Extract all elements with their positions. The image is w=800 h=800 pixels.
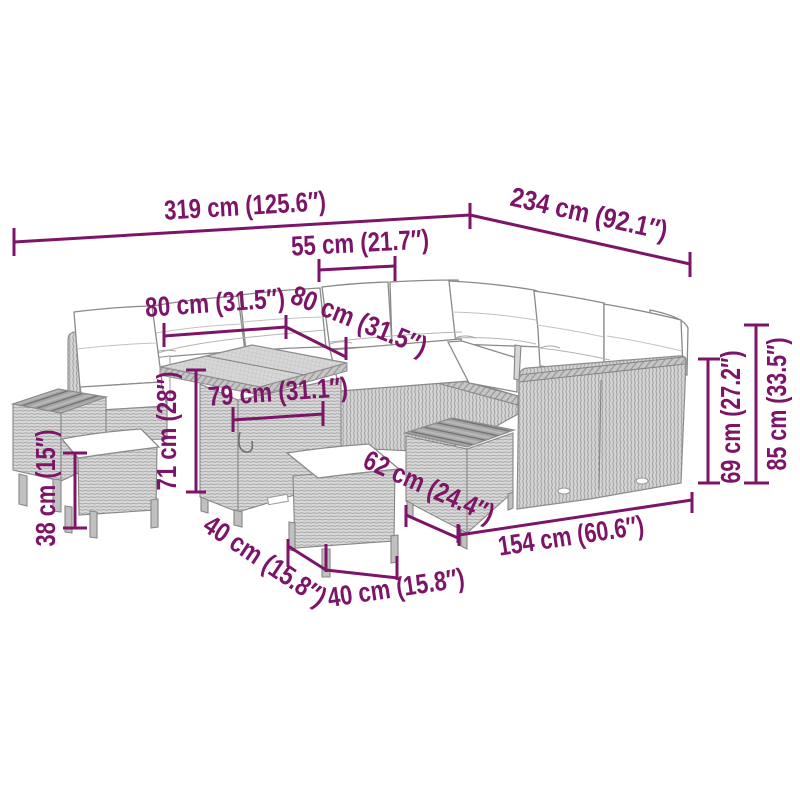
svg-text:85 cm (33.5″): 85 cm (33.5″) <box>761 338 792 471</box>
svg-text:69 cm (27.2″): 69 cm (27.2″) <box>715 351 746 484</box>
svg-text:38 cm (15″): 38 cm (15″) <box>30 430 61 547</box>
svg-text:71 cm (28″): 71 cm (28″) <box>151 372 182 491</box>
